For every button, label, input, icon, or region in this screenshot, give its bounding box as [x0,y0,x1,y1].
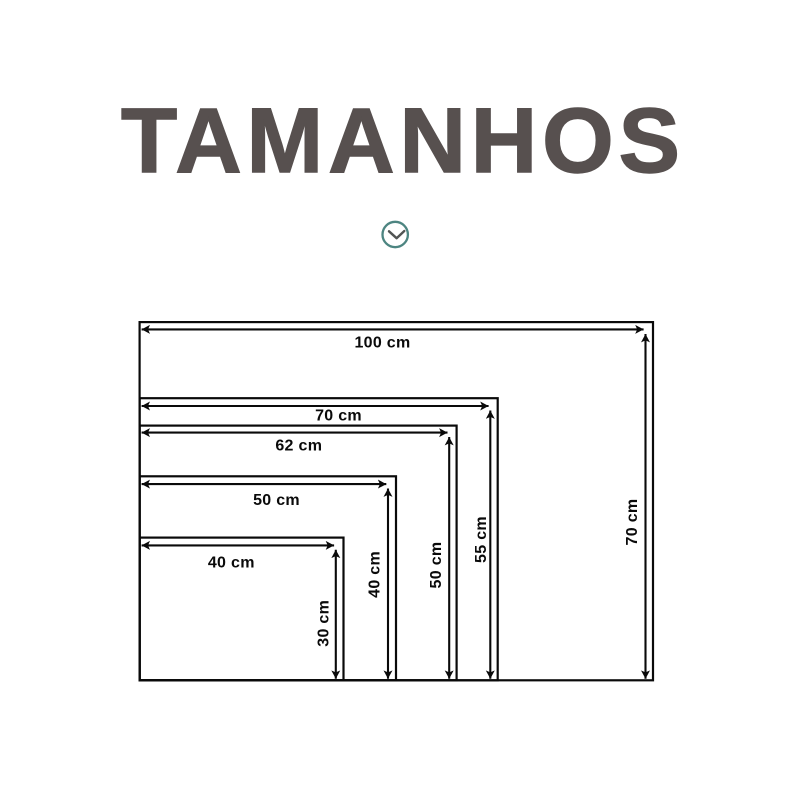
svg-text:55 cm: 55 cm [473,516,490,563]
svg-text:50 cm: 50 cm [253,492,300,509]
svg-text:50 cm: 50 cm [428,542,445,589]
svg-text:TAMANHOS: TAMANHOS [121,90,685,192]
svg-text:62 cm: 62 cm [275,438,322,455]
svg-text:40 cm: 40 cm [367,551,384,598]
svg-text:30 cm: 30 cm [315,600,332,647]
svg-text:70 cm: 70 cm [315,408,362,425]
svg-text:70 cm: 70 cm [624,499,641,546]
svg-text:40 cm: 40 cm [208,555,255,572]
svg-text:100 cm: 100 cm [354,335,410,352]
